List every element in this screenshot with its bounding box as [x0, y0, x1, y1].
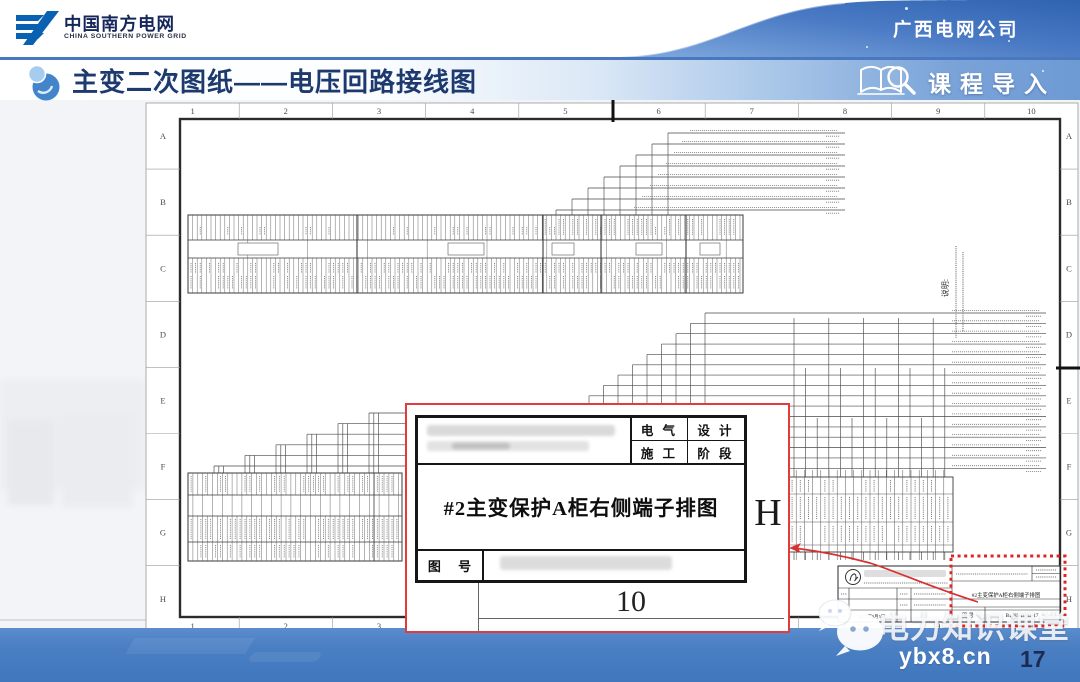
- red-annotations: [0, 0, 1080, 682]
- page-number: 17: [1020, 646, 1046, 673]
- wechat-icon: [814, 596, 888, 660]
- watermark-text: 电力知识课堂: [878, 602, 1070, 647]
- slide: { "header": { "logo_title": "中国南方电网", "l…: [0, 0, 1080, 682]
- watermark-site: ybx8.cn: [899, 643, 992, 670]
